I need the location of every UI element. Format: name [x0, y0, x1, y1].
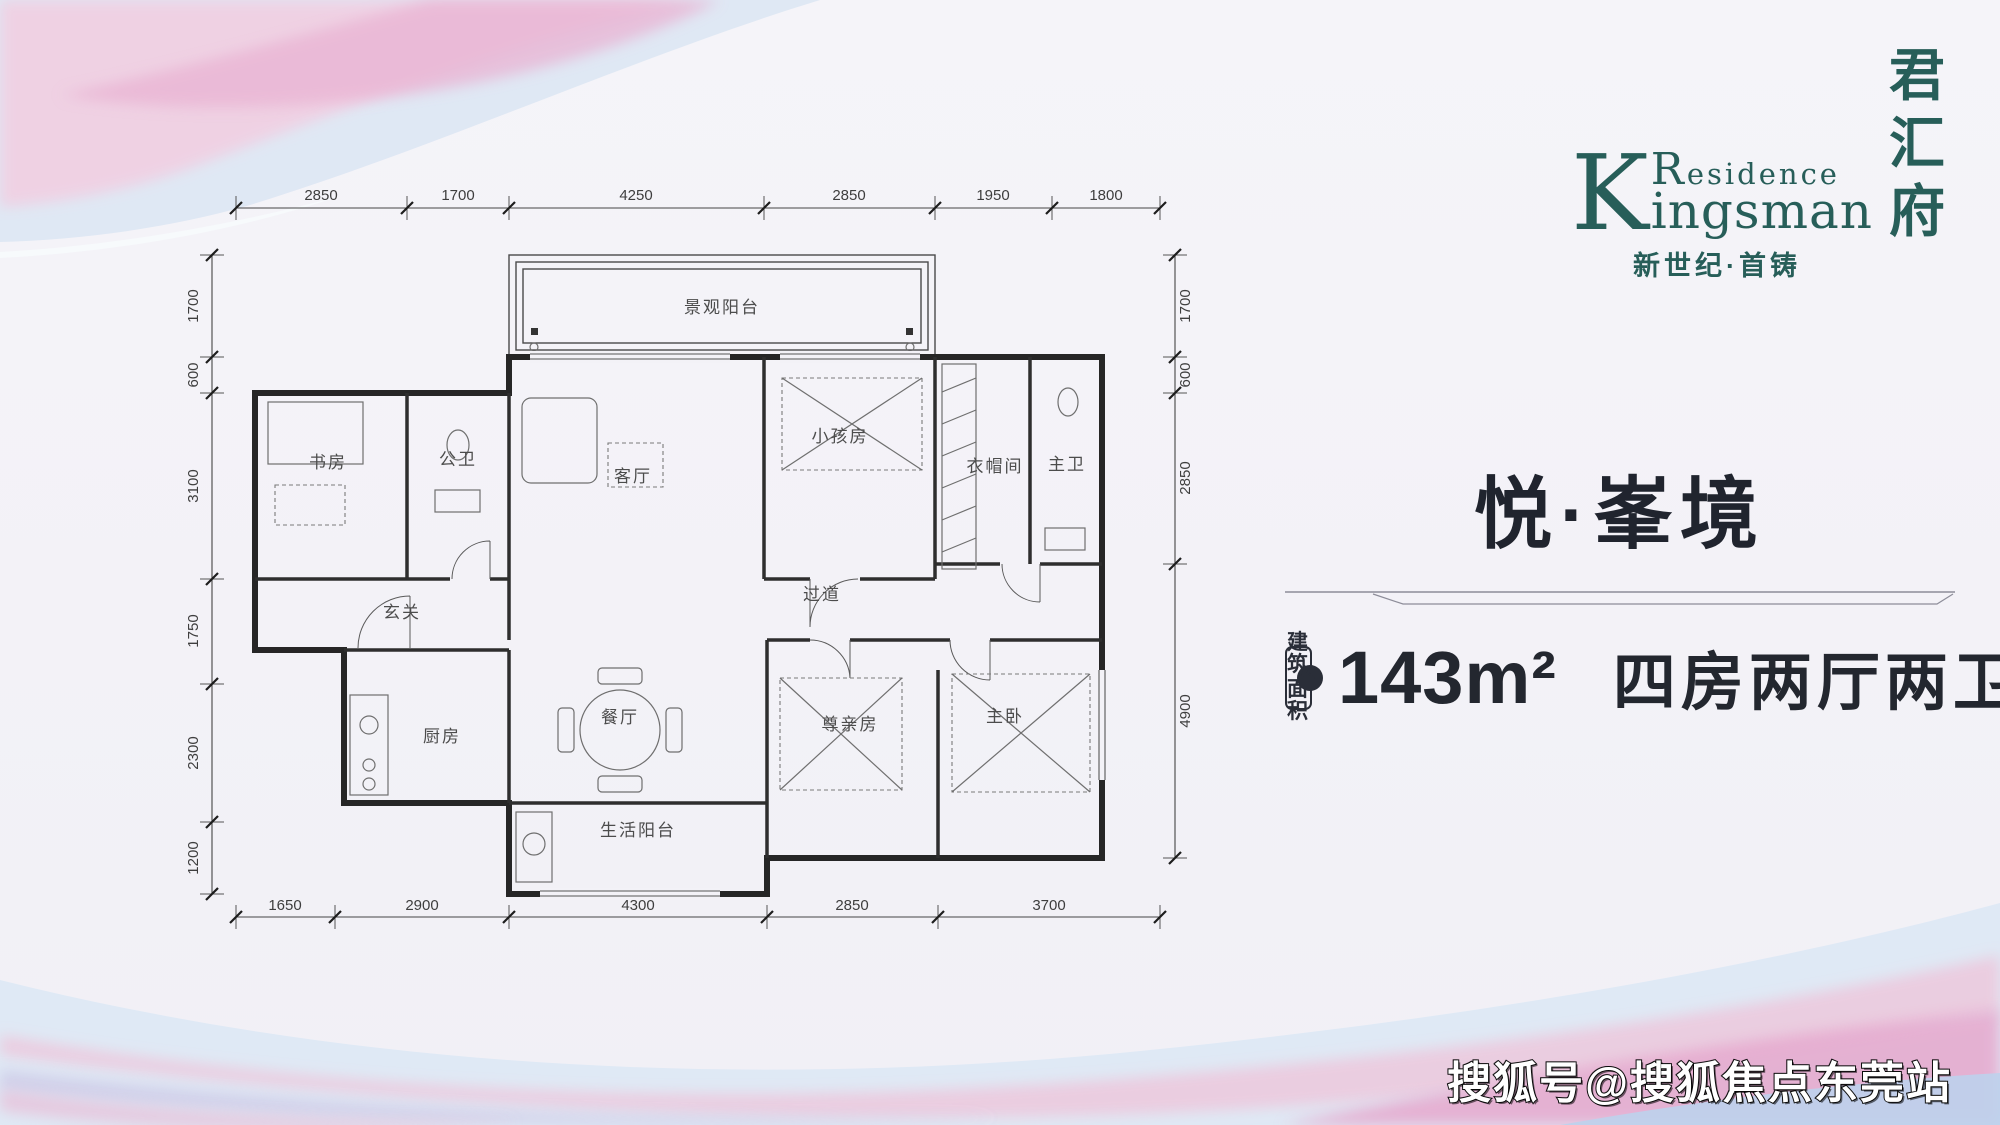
dim-top-1: 2850	[304, 187, 337, 204]
approx-badge: 约	[1297, 665, 1323, 691]
dimension-row-bottom: 1650 2900 4300 2850 3700	[230, 897, 1166, 929]
room-label-foyer: 玄关	[383, 603, 421, 622]
dimension-column-right: 1700 600 2850 4900	[1163, 249, 1194, 864]
room-label-cloak-room: 衣帽间	[967, 457, 1024, 476]
unit-title: 悦·峯境	[1285, 452, 1955, 564]
logo-cn-char-2: 汇	[1889, 116, 1945, 172]
dim-top-6: 1800	[1089, 187, 1122, 204]
dim-left-6: 1200	[185, 841, 202, 874]
dim-bottom-2: 2900	[405, 897, 438, 914]
dim-left-2: 600	[185, 362, 202, 387]
dim-left-3: 3100	[185, 469, 202, 502]
room-label-master-bedroom: 主卧	[986, 707, 1024, 726]
dim-top-4: 2850	[832, 187, 865, 204]
room-label-master-bath: 主卫	[1048, 455, 1086, 474]
brand-logo: K Residence ingsman 君 汇 府 新世纪·首铸	[1571, 48, 1945, 283]
dim-right-2: 600	[1177, 362, 1194, 387]
info-panel: 悦·峯境 建筑 面积 约 143m² 四房两厅两卫	[1285, 452, 1955, 723]
dim-right-4: 4900	[1177, 694, 1194, 727]
floorplan: 2850 1700 4250 2850 1950 1800 1650 2900 …	[150, 150, 1220, 950]
title-divider	[1285, 590, 1955, 608]
spec-row: 建筑 面积 约 143m² 四房两厅两卫	[1285, 632, 1955, 723]
dim-left-4: 1750	[185, 614, 202, 647]
room-label-utility-balcony: 生活阳台	[600, 821, 676, 840]
outer-walls	[255, 357, 1102, 894]
logo-wordmark: Residence ingsman	[1651, 155, 1873, 234]
watermark: 搜狐号@搜狐焦点东莞站	[1447, 1047, 1952, 1111]
logo-k-letter: K	[1571, 153, 1649, 234]
dimension-row-top: 2850 1700 4250 2850 1950 1800	[230, 187, 1166, 220]
dim-top-3: 4250	[619, 187, 652, 204]
dim-bottom-4: 2850	[835, 897, 868, 914]
room-label-guest-bath: 公卫	[439, 450, 477, 469]
logo-kingsman-rest: ingsman	[1651, 189, 1873, 234]
logo-chinese-name: 君 汇 府	[1889, 48, 1945, 240]
room-label-study: 书房	[309, 453, 347, 472]
dim-bottom-5: 3700	[1032, 897, 1065, 914]
dim-top-2: 1700	[441, 187, 474, 204]
page: 2850 1700 4250 2850 1950 1800 1650 2900 …	[0, 0, 2000, 1125]
room-label-dining: 餐厅	[601, 708, 639, 727]
dim-right-3: 2850	[1177, 461, 1194, 494]
dim-left-1: 1700	[185, 289, 202, 322]
doors	[358, 541, 1040, 680]
dim-top-5: 1950	[976, 187, 1009, 204]
area-value: 143m²	[1338, 635, 1557, 720]
logo-cn-char-3: 府	[1889, 184, 1945, 240]
brand-logo-row: K Residence ingsman 君 汇 府	[1571, 48, 1945, 234]
room-label-kitchen: 厨房	[423, 727, 461, 746]
room-label-living: 客厅	[614, 467, 652, 486]
room-label-elder-room: 尊亲房	[822, 715, 879, 734]
logo-cn-char-1: 君	[1889, 48, 1945, 104]
dim-right-1: 1700	[1177, 289, 1194, 322]
room-label-view-balcony: 景观阳台	[684, 298, 760, 317]
dim-bottom-1: 1650	[268, 897, 301, 914]
area-label-box: 建筑 面积 约	[1285, 646, 1312, 710]
layout-description: 四房两厅两卫	[1613, 632, 2000, 723]
dimension-column-left: 1700 600 3100 1750 2300 1200	[185, 249, 224, 900]
dim-left-5: 2300	[185, 736, 202, 769]
room-label-kids-room: 小孩房	[812, 427, 869, 446]
room-label-corridor: 过道	[803, 585, 841, 604]
